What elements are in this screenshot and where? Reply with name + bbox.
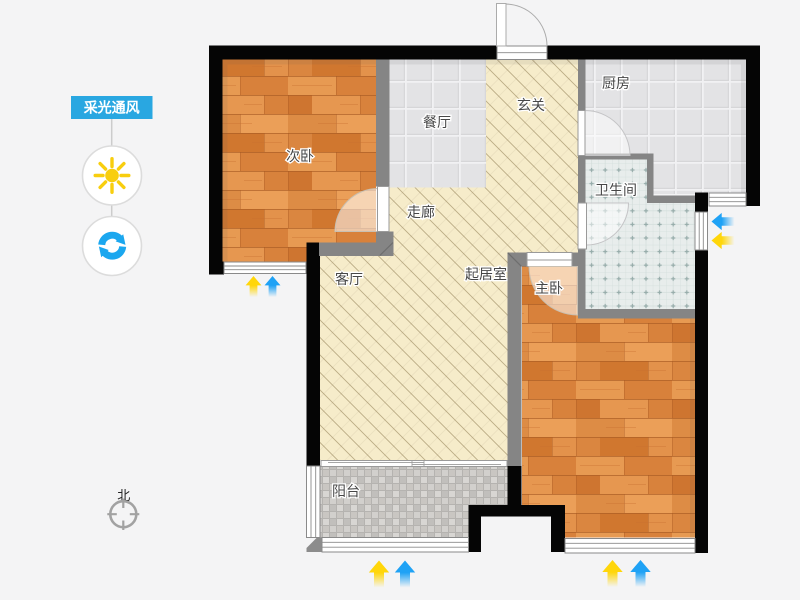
svg-text:玄关: 玄关	[517, 97, 545, 113]
svg-text:主卧: 主卧	[535, 280, 563, 296]
svg-text:阳台: 阳台	[332, 483, 360, 499]
svg-text:餐厅: 餐厅	[423, 114, 451, 130]
svg-text:卫生间: 卫生间	[595, 182, 637, 198]
svg-text:厨房: 厨房	[602, 75, 630, 91]
svg-text:客厅: 客厅	[335, 271, 363, 287]
svg-text:采光通风: 采光通风	[83, 100, 140, 116]
svg-text:次卧: 次卧	[286, 148, 314, 164]
svg-text:走廊: 走廊	[407, 204, 435, 220]
svg-text:起居室: 起居室	[465, 266, 507, 282]
